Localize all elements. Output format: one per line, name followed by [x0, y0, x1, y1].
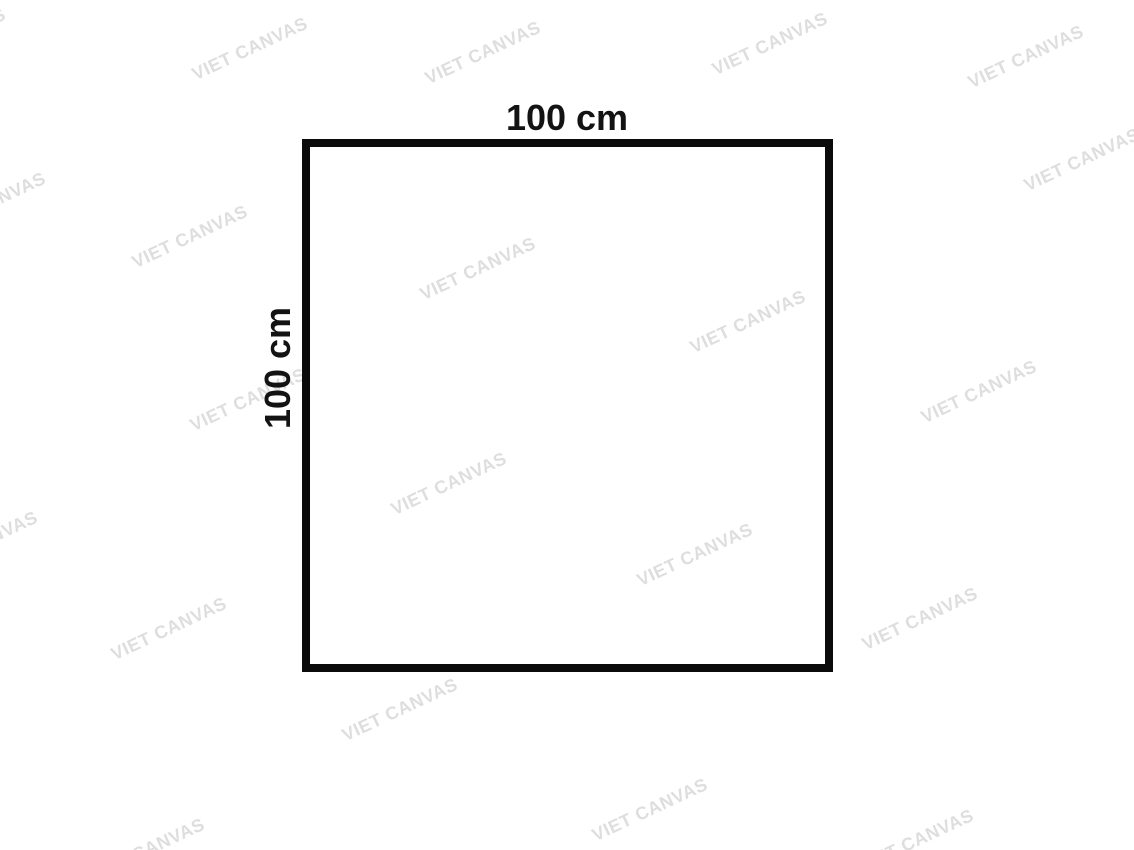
- left-dimension-label: 100 cm: [260, 307, 296, 429]
- dimension-diagram: 100 cm 100 cm: [0, 0, 1134, 850]
- top-dimension-label: 100 cm: [506, 100, 628, 136]
- square-outline: [302, 139, 833, 672]
- page: VIET CANVASVIET CANVASVIET CANVASVIET CA…: [0, 0, 1134, 850]
